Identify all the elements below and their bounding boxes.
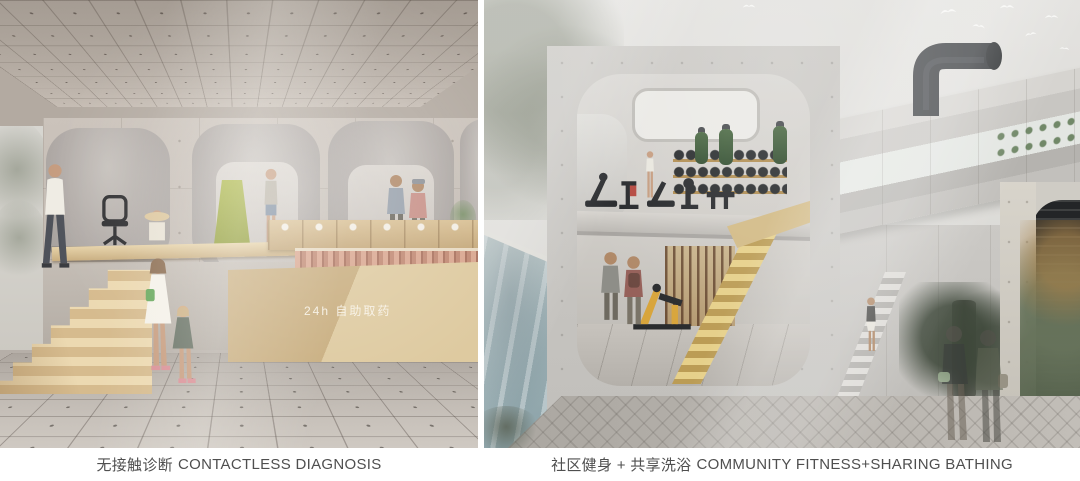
person-pair-bathers	[595, 250, 647, 346]
person-pair-foreground	[932, 322, 1012, 448]
ceiling-grid	[0, 0, 478, 107]
caption-right-en: COMMUNITY FITNESS+SHARING BATHING	[696, 456, 1012, 473]
bird-icon	[742, 2, 756, 9]
caption-left-zh: 无接触诊断	[96, 454, 173, 475]
black-elbow-pipe	[904, 40, 1014, 118]
caption-left: 无接触诊断 CONTACTLESS DIAGNOSIS	[0, 452, 478, 476]
pharmacy-counter: 24h 自助取药	[228, 262, 478, 362]
render-left-contactless-diagnosis: 24h 自助取药	[0, 0, 478, 448]
counter-sign: 24h 自助取药	[304, 302, 391, 319]
person-walking-man	[38, 162, 72, 272]
office-chair-icon	[94, 194, 138, 250]
person-on-stairs	[860, 296, 882, 358]
page: 24h 自助取药	[0, 0, 1080, 481]
punching-bag	[695, 132, 708, 164]
person-child	[168, 290, 198, 400]
concrete-frame	[547, 46, 840, 412]
caption-left-en: CONTACTLESS DIAGNOSIS	[178, 456, 382, 473]
caption-band: 无接触诊断 CONTACTLESS DIAGNOSIS 社区健身 + 共享洗浴 …	[0, 448, 1080, 481]
punching-bag	[773, 126, 787, 164]
render-right-community-fitness	[484, 0, 1080, 448]
counter-upper-shelf	[268, 220, 478, 250]
punching-bag	[719, 129, 733, 165]
gym-machines	[583, 168, 743, 218]
bird-icon	[999, 2, 1015, 10]
bird-icon	[1044, 12, 1059, 20]
concrete-ceiling	[0, 0, 478, 126]
caption-right-zh: 社区健身 + 共享洗浴	[551, 454, 691, 475]
caption-right: 社区健身 + 共享洗浴 COMMUNITY FITNESS+SHARING BA…	[484, 452, 1080, 476]
bird-icon	[1059, 44, 1071, 51]
frame-interior	[577, 74, 810, 386]
